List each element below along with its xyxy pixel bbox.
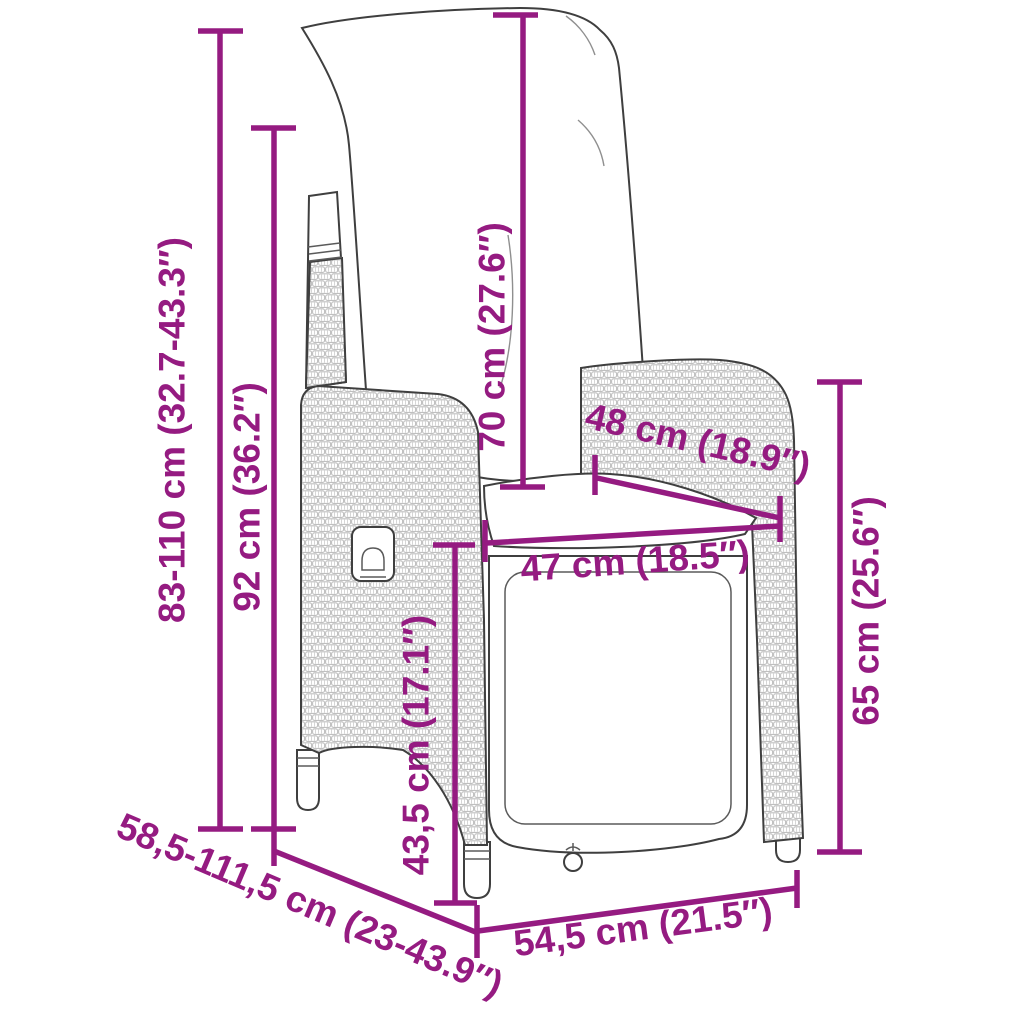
dimension-back-height-label: 92 cm (36.2″)	[227, 382, 268, 612]
dimension-total-height-label: 83-110 cm (32.7-43.3″)	[152, 237, 193, 623]
recline-handle	[352, 527, 394, 581]
left-side-panel	[301, 386, 487, 845]
dimension-diagram: 83-110 cm (32.7-43.3″) 92 cm (36.2″) 70 …	[0, 0, 1024, 1029]
backrest-post-weave	[306, 258, 346, 388]
footrest-front-panel	[489, 556, 747, 853]
dimension-cushion-length-label: 70 cm (27.6″)	[472, 222, 513, 452]
dimension-base-width: 54,5 cm (21.5″)	[477, 870, 797, 964]
dimension-armrest-height-label: 65 cm (25.6″)	[846, 496, 887, 726]
back-left-leg	[297, 750, 319, 810]
dimension-armrest-height: 65 cm (25.6″)	[817, 382, 887, 852]
dimension-base-width-label: 54,5 cm (21.5″)	[511, 890, 775, 965]
dimension-seat-front-height-label: 43,5 cm (17.1″)	[396, 615, 437, 875]
dimension-back-height: 92 cm (36.2″)	[227, 128, 297, 866]
